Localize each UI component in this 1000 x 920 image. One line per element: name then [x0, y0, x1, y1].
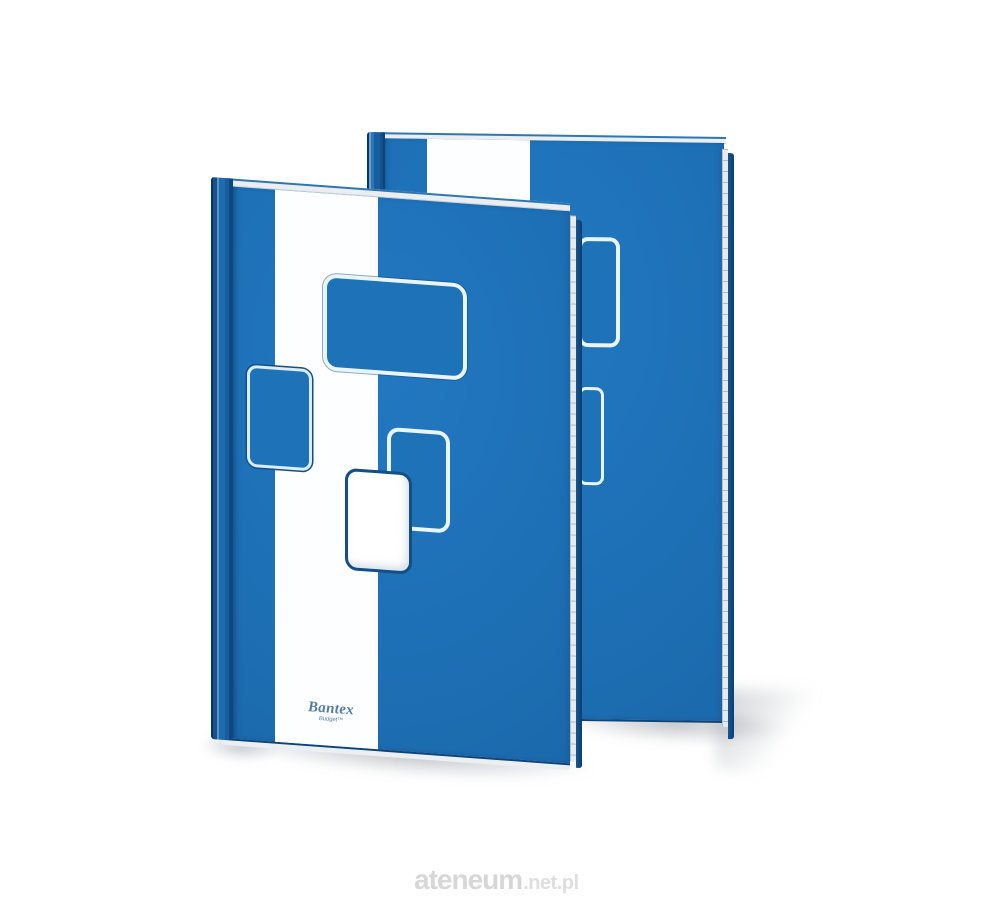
back-cover-rounded-rect-outline-top: [578, 237, 620, 348]
product-photo-stage: Bantex Budget™ ateneum .net.pl: [0, 0, 1000, 920]
watermark-domain-suffix: .net.pl: [523, 873, 578, 893]
watermark: ateneum .net.pl: [414, 866, 579, 894]
back-notebook-back-cover-edge: [728, 153, 734, 739]
front-cover-left-portrait-rect: [247, 365, 312, 472]
front-notebook-spine: [211, 177, 233, 741]
front-cover: Bantex Budget™: [233, 187, 570, 766]
front-cover-white-filled-rect: [345, 468, 412, 575]
front-cover-large-landscape-rect: [323, 273, 467, 381]
front-notebook-back-cover-edge: [576, 220, 582, 768]
watermark-site-name: ateneum: [414, 866, 522, 894]
shadow-back-right-wedge: [716, 690, 836, 770]
notebook-front: Bantex Budget™: [211, 177, 582, 771]
